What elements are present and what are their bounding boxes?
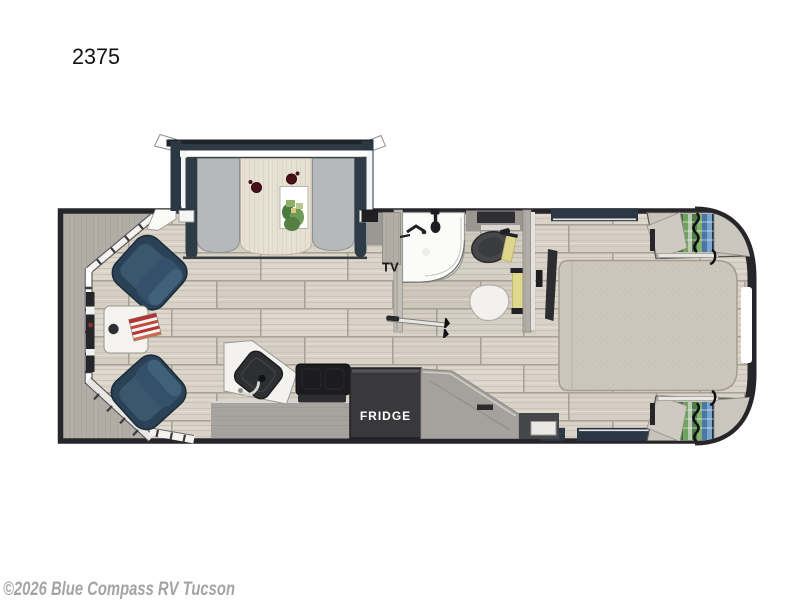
- svg-text:2375: 2375: [72, 44, 120, 69]
- svg-text:FRIDGE: FRIDGE: [360, 409, 411, 423]
- svg-text:©2026 Blue Compass RV Tucson: ©2026 Blue Compass RV Tucson: [3, 579, 235, 600]
- svg-text:TV: TV: [382, 260, 399, 275]
